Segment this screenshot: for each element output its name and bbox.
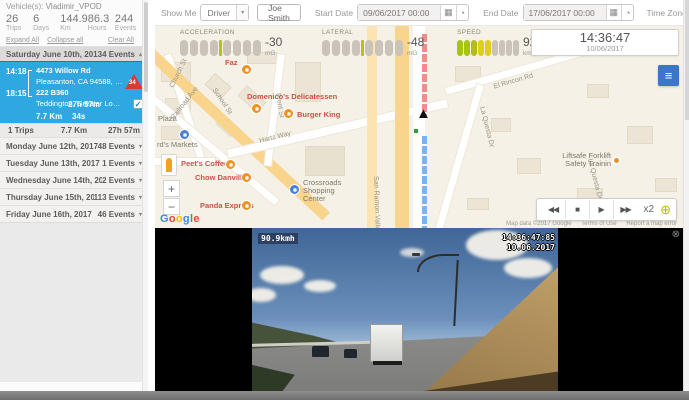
day-group-monday[interactable]: Monday June 12th, 2017 48 Events ▾ — [0, 137, 148, 154]
stat-trips: 26Trips — [6, 13, 33, 32]
spacer — [91, 37, 108, 44]
street-lamp-arm — [417, 254, 459, 272]
calendar-icon[interactable]: ▦ — [606, 5, 622, 20]
summary-duration: 27h 57m — [96, 126, 140, 135]
poi-label-plaza: Plaza — [158, 114, 177, 123]
collapse-all-link[interactable]: Collapse all — [47, 37, 83, 44]
speed-gauge: SPEED 92km/h — [457, 29, 537, 59]
cloud — [252, 288, 276, 302]
day-events: 34 Events — [98, 50, 135, 59]
day-date: Thursday June 15th, 2017 — [6, 193, 94, 202]
lateral-gauge: LATERAL -48mG — [322, 29, 424, 59]
summary-distance: 7.7 Km — [52, 126, 96, 135]
lateral-bars-right — [365, 40, 403, 56]
day-date: Monday June 12th, 2017 — [6, 142, 98, 151]
trip-alert-warning-icon[interactable]: 34 — [125, 74, 143, 89]
show-me-value: Driver — [201, 8, 236, 18]
trip-distance: 7.7 Km — [36, 112, 62, 121]
trip-start-address: 4473 Willow Rd — [36, 65, 124, 76]
day-group-saturday[interactable]: Saturday June 10th, 2017 34 Events ▴ — [0, 46, 148, 61]
zoom-in-button[interactable]: + — [163, 180, 180, 197]
stat-days-value: 6 — [33, 13, 60, 25]
show-me-label: Show Me — [161, 8, 196, 18]
stat-km-value: 144.9 — [60, 13, 88, 25]
poi-label-markets[interactable]: rd's Markets — [157, 140, 198, 149]
page-scrollbar-thumb[interactable] — [685, 0, 689, 120]
day-group-wednesday[interactable]: Wednesday June 14th, 2017 2 Events ▾ — [0, 171, 148, 188]
sidebar-empty-area — [0, 222, 148, 382]
summary-trips: 1 Trips — [8, 126, 52, 135]
poi-label-chow[interactable]: Chow Danville — [195, 173, 246, 182]
cloud — [304, 280, 336, 292]
start-date-label: Start Date — [315, 8, 353, 18]
lateral-bars-left — [322, 40, 360, 56]
trip-alert-count: 34 — [129, 80, 136, 86]
sidebar-divider — [148, 0, 155, 391]
day-events: 1 Events — [102, 159, 135, 168]
acceleration-bars-right — [223, 40, 261, 56]
day-events: 46 Events — [98, 210, 135, 219]
day-date: Tuesday June 13th, 2017 — [6, 159, 102, 168]
playback-controls: ◀◀ ■ ▶ ▶▶ x2 ⊕ — [536, 198, 677, 221]
day-events: 2 Events — [102, 176, 135, 185]
calendar-icon[interactable]: ▦ — [440, 5, 456, 20]
street-label-san-ramon: San Ramon Valley B — [372, 176, 381, 228]
timezone-label: Time Zone — [646, 8, 686, 18]
video-timestamp-time: 14:36:47:85 — [502, 233, 555, 243]
day-group-thursday[interactable]: Thursday June 15th, 2017 113 Events ▾ — [0, 188, 148, 205]
cloud — [504, 258, 552, 278]
poi-dot-icon[interactable] — [612, 156, 621, 165]
day-group-tuesday[interactable]: Tuesday June 13th, 2017 1 Events ▾ — [0, 154, 148, 171]
restaurant-icon[interactable] — [251, 103, 262, 114]
trip-stop-time: 34s — [72, 112, 85, 121]
trip-end-address: 222 B360 — [36, 87, 124, 98]
show-me-select[interactable]: Driver ▾ — [200, 4, 249, 21]
vehicle-position-arrow[interactable]: ▲ — [416, 108, 431, 120]
stat-days: 6Days — [33, 13, 60, 32]
acceleration-bars-left — [180, 40, 218, 56]
trip-start-time: 14:18 — [6, 67, 26, 76]
stat-hours-value: 86.3 — [88, 13, 115, 25]
trip-route-bracket — [28, 70, 32, 97]
dashcam-video[interactable]: 90.9kmh 14:36:47:85 10.06.2017 — [252, 228, 558, 391]
stat-trips-value: 26 — [6, 13, 33, 25]
restaurant-icon[interactable] — [241, 64, 252, 75]
cloud — [260, 266, 304, 284]
street-lamp-head — [412, 253, 420, 256]
end-date-input[interactable]: 17/06/2017 00:00 ▦ ◔ — [523, 4, 635, 21]
playback-time: 14:36:47 — [532, 30, 678, 45]
trip-start-city: Pleasanton, CA 94588, USA — [36, 76, 124, 87]
playback-speed-button[interactable]: x2 — [644, 204, 655, 215]
terms-link[interactable]: Terms of Use — [581, 221, 616, 227]
stat-events: 244Events — [115, 13, 142, 32]
video-speed-overlay: 90.9kmh — [258, 233, 298, 244]
trip-duration: 27h 57m — [68, 100, 100, 109]
clock-icon[interactable]: ◔ — [456, 5, 468, 20]
street-view-pegman[interactable] — [161, 154, 177, 176]
stat-events-value: 244 — [115, 13, 142, 25]
fast-forward-button[interactable]: ▶▶ — [614, 200, 638, 219]
video-panel: ⊗ 90.9kmh 14:36:47:85 10.06.2017 — [155, 228, 683, 391]
cafe-icon[interactable] — [225, 159, 236, 170]
page-scrollbar[interactable] — [683, 0, 689, 391]
stat-hours: 86.3Hours — [88, 13, 115, 32]
poi-label-peets[interactable]: Peet's Coffee — [181, 159, 228, 168]
play-button[interactable]: ▶ — [590, 200, 614, 219]
stat-days-label: Days — [33, 25, 60, 32]
stat-events-label: Events — [115, 25, 142, 32]
stat-km: 144.9Km — [60, 13, 88, 32]
clear-all-link[interactable]: Clear All — [108, 37, 134, 44]
video-timestamp-date: 10.06.2017 — [502, 243, 555, 253]
report-link[interactable]: Report a map error — [626, 221, 677, 227]
restaurant-icon[interactable] — [241, 200, 252, 211]
poi-label-crossroads[interactable]: Crossroads Shopping Center — [303, 179, 358, 203]
poi-label-liftsafe[interactable]: Liftsafe Forklift Safety Trainin — [555, 152, 611, 168]
vehicle-name: Vladimir_VPOD — [46, 2, 102, 11]
shopping-cart-icon[interactable] — [179, 129, 190, 140]
shopping-bag-icon[interactable] — [289, 184, 300, 195]
map-canvas[interactable]: Church St Railroad Ave School St Front S… — [155, 26, 683, 228]
playback-clock: 14:36:47 10/06/2017 — [531, 29, 679, 56]
trips-sidebar: Vehicle(s): Vladimir_VPOD 26Trips 6Days … — [0, 0, 148, 391]
acceleration-gauge: ACCELERATION -30mG — [180, 29, 282, 59]
stat-km-label: Km — [60, 25, 88, 32]
restaurant-icon[interactable] — [241, 172, 252, 183]
car-ahead — [344, 349, 357, 358]
acceleration-indicator — [219, 40, 222, 56]
end-date-value[interactable]: 17/06/2017 00:00 — [524, 5, 606, 20]
day-date: Wednesday June 14th, 2017 — [6, 176, 102, 185]
end-date-label: End Date — [483, 8, 518, 18]
stat-trips-label: Trips — [6, 25, 33, 32]
restaurant-icon[interactable] — [283, 108, 294, 119]
stop-button[interactable]: ■ — [566, 200, 590, 219]
day-events: 113 Events — [94, 193, 135, 202]
driver-button[interactable]: Joe Smith — [257, 4, 301, 21]
center-vehicle-button[interactable]: ⊕ — [660, 203, 671, 216]
car-ahead — [312, 346, 329, 357]
trip-end-time: 18:15 — [6, 89, 26, 98]
poi-label-burger-king[interactable]: Burger King — [297, 110, 340, 119]
poi-label-domenicos[interactable]: Domenico's Delicatessen — [247, 92, 337, 101]
vehicles-label: Vehicle(s): — [6, 2, 43, 11]
menu-icon: ≡ — [665, 68, 673, 83]
pegman-icon — [166, 158, 172, 172]
google-logo: Google — [160, 213, 200, 225]
list-actions: Expand All Collapse all Clear All — [0, 35, 148, 46]
rewind-button[interactable]: ◀◀ — [542, 200, 566, 219]
vehicles-selector[interactable]: Vehicle(s): Vladimir_VPOD — [0, 0, 148, 11]
day-events: 48 Events — [98, 142, 135, 151]
lateral-indicator — [361, 40, 364, 56]
day-date: Saturday June 10th, 2017 — [6, 50, 98, 59]
video-timestamp-overlay: 14:36:47:85 10.06.2017 — [502, 233, 555, 253]
start-date-input[interactable]: 09/06/2017 00:00 ▦ ◔ — [357, 4, 469, 21]
acceleration-value: -30mG — [265, 37, 282, 59]
lateral-value: -48mG — [407, 37, 424, 59]
map-attribution: Map data ©2017 Google Terms of Use Repor… — [498, 221, 677, 227]
day-group-friday[interactable]: Friday June 16th, 2017 46 Events ▾ — [0, 205, 148, 222]
close-video-icon[interactable]: ⊗ — [672, 229, 680, 240]
start-date-value[interactable]: 09/06/2017 00:00 — [358, 5, 440, 20]
bottom-bar — [0, 391, 689, 400]
day-summary-row: 1 Trips 7.7 Km 27h 57m — [0, 123, 148, 137]
route-segment-blue — [422, 136, 427, 228]
map-menu-button[interactable]: ≡ — [658, 65, 679, 86]
trip-stats: 26Trips 6Days 144.9Km 86.3Hours 244Event… — [0, 11, 148, 35]
speed-bars — [457, 40, 519, 56]
route-start-marker — [413, 128, 419, 134]
poi-label-faz[interactable]: Faz — [225, 58, 238, 67]
filter-toolbar: Show Me Driver ▾ Joe Smith Start Date 09… — [155, 0, 683, 26]
truck-ahead — [370, 324, 403, 362]
selected-trip-card[interactable]: 14:18 18:15 4473 Willow Rd Pleasanton, C… — [0, 61, 148, 123]
expand-all-link[interactable]: Expand All — [6, 37, 39, 44]
playback-date: 10/06/2017 — [532, 45, 678, 53]
day-date: Friday June 16th, 2017 — [6, 210, 98, 219]
stat-hours-label: Hours — [88, 25, 115, 32]
attribution-text: Map data ©2017 Google — [506, 221, 571, 227]
dropdown-icon[interactable]: ▾ — [236, 5, 248, 20]
app: Vehicle(s): Vladimir_VPOD 26Trips 6Days … — [0, 0, 689, 400]
clock-icon[interactable]: ◔ — [621, 5, 633, 20]
